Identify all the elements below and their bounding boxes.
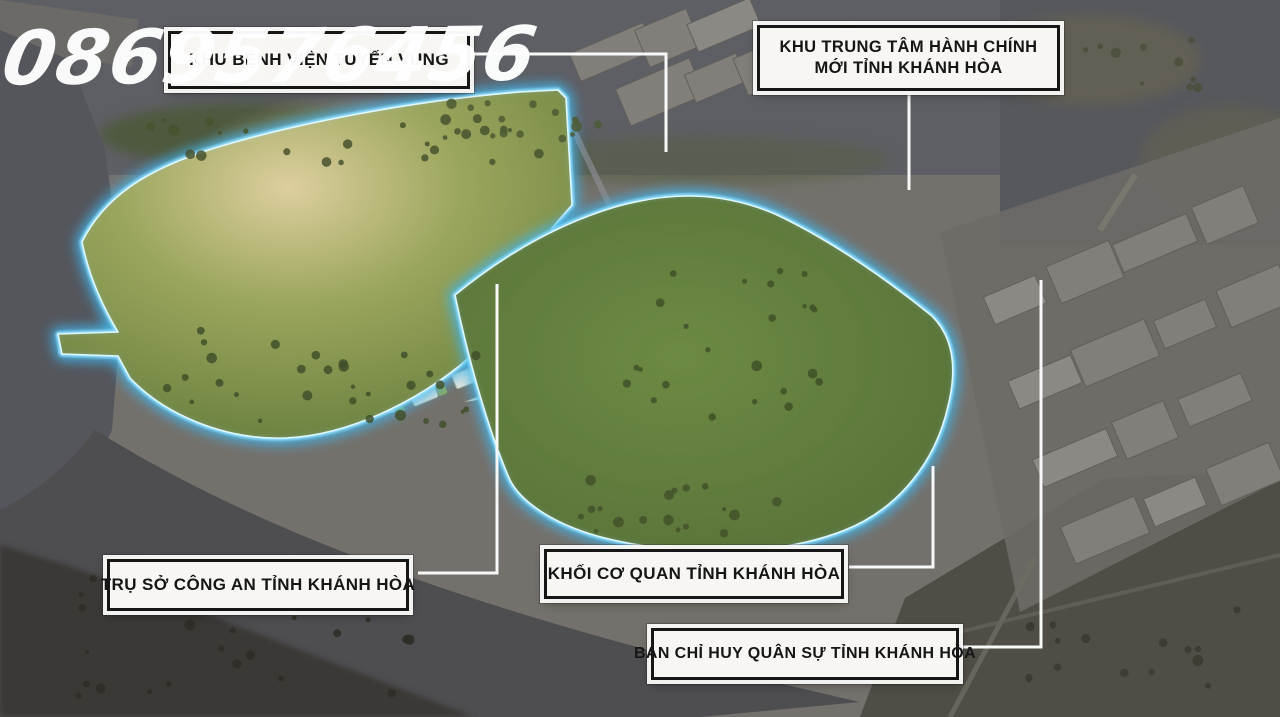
- callout-police-hq: TRỤ SỞ CÔNG AN TỈNH KHÁNH HÒA: [107, 559, 409, 611]
- watermark-phone-number: 0869576456: [0, 10, 544, 103]
- callout-label: TRỤ SỞ CÔNG AN TỈNH KHÁNH HÒA: [101, 574, 415, 596]
- callout-label: KHU TRUNG TÂM HÀNH CHÍNH MỚI TỈNH KHÁNH …: [768, 37, 1049, 79]
- callout-province-agencies: KHỐI CƠ QUAN TỈNH KHÁNH HÒA: [544, 549, 844, 599]
- callout-military-command: BAN CHỈ HUY QUÂN SỰ TỈNH KHÁNH HÒA: [651, 628, 959, 680]
- masterplan-scene: KHU BỆNH VIỆN TUYẾN VÙNG KHU TRUNG TÂM H…: [0, 0, 1280, 717]
- callout-label: BAN CHỈ HUY QUÂN SỰ TỈNH KHÁNH HÒA: [634, 644, 976, 664]
- callout-admin-center: KHU TRUNG TÂM HÀNH CHÍNH MỚI TỈNH KHÁNH …: [757, 25, 1060, 91]
- callout-label: KHỐI CƠ QUAN TỈNH KHÁNH HÒA: [548, 563, 841, 585]
